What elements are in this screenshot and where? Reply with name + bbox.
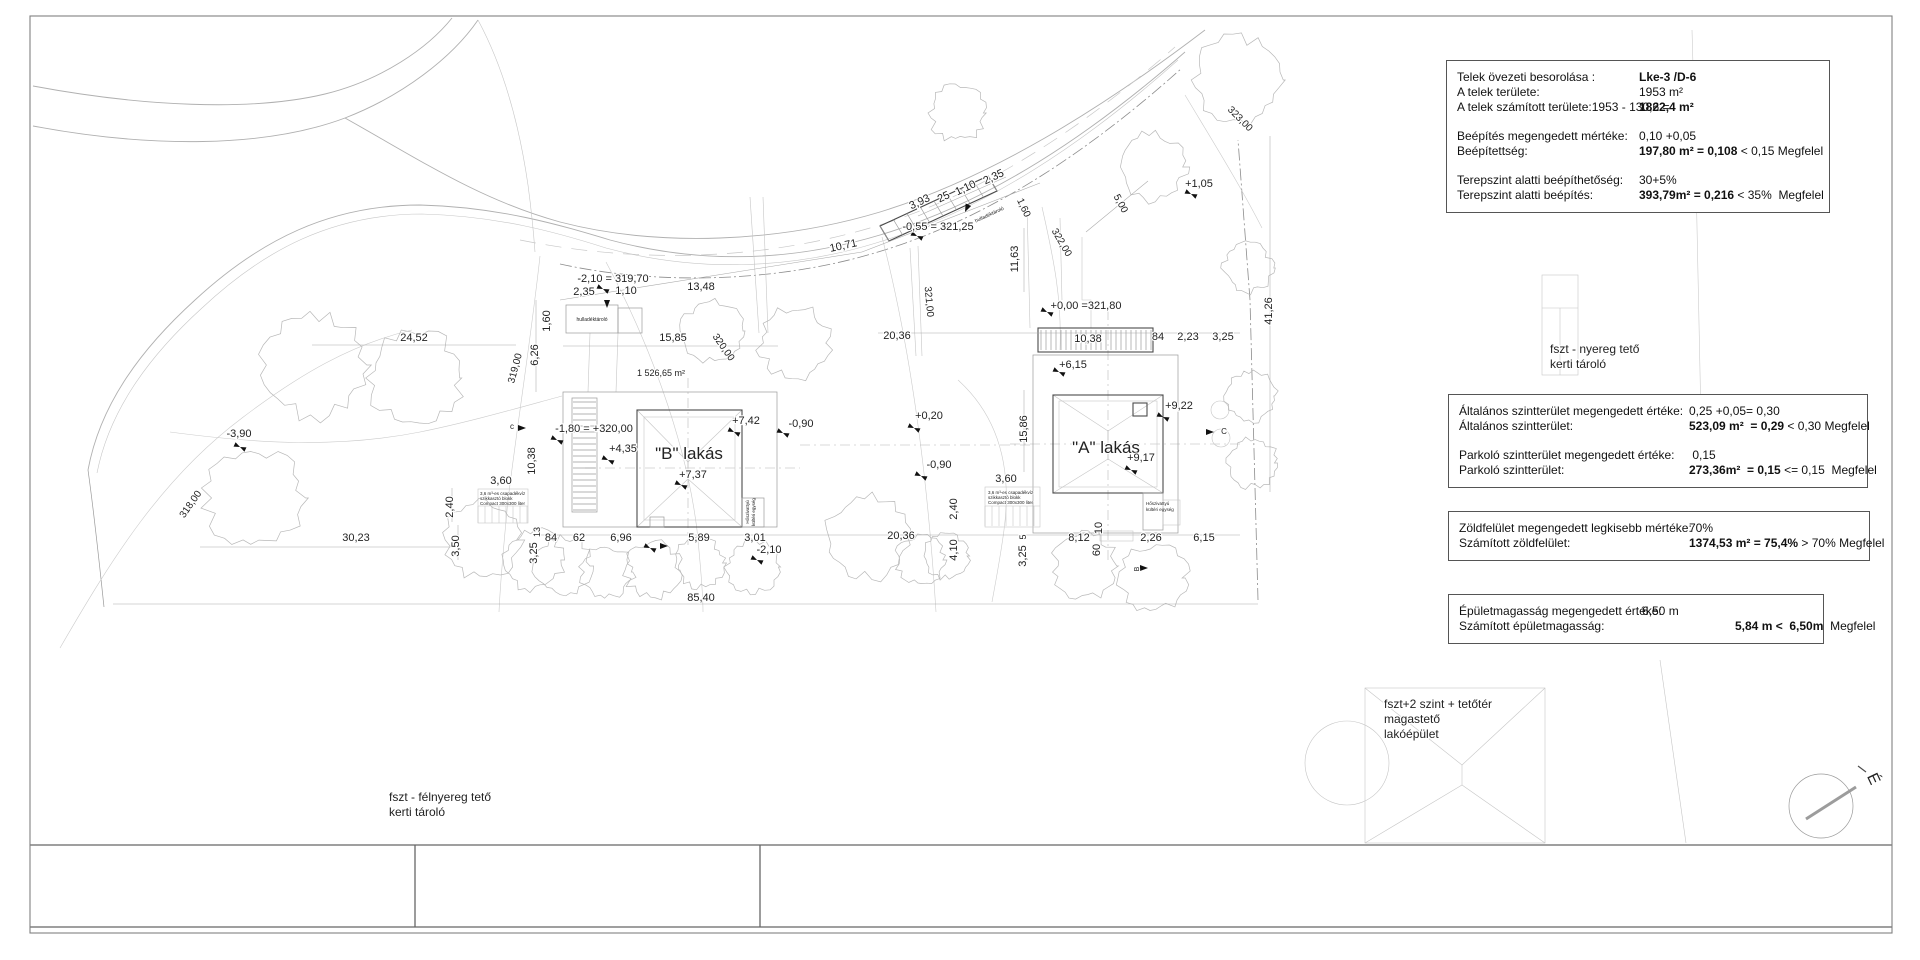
plan-label: -2,10 <box>756 544 781 556</box>
plan-label: +7,37 <box>679 469 707 481</box>
plan-label: Hőszivattyú <box>1146 501 1170 506</box>
row-label: Terepszint alatti beépítés: <box>1457 188 1639 203</box>
row-value: 5,84 m < 6,50m Megfelel <box>1735 619 1875 634</box>
plan-label: 25 <box>936 189 952 205</box>
plan-label: 13,48 <box>687 281 715 293</box>
panel-row: A telek számított területe:1953 - 130,6 … <box>1457 100 1819 115</box>
tree-symbol <box>680 298 745 363</box>
tree-symbol <box>1120 130 1189 204</box>
plan-label: hulladéktároló <box>974 206 1005 225</box>
plan-label: 1 526,65 m² <box>637 368 685 378</box>
row-label: Épületmagasság megengedett értéke: <box>1459 604 1642 619</box>
panel-row: Zöldfelület megengedett legkisebb mérték… <box>1459 521 1859 536</box>
plan-label: 15,86 <box>1018 415 1030 443</box>
plan-label: 84 <box>1152 331 1164 343</box>
plan-label: -2,10 = 319,70 <box>577 273 648 285</box>
plan-label: 8,12 <box>1068 532 1089 544</box>
plan-label: 41,26 <box>1263 297 1275 325</box>
plan-label: 3,25 <box>1017 545 1029 566</box>
row-label: Számított zöldfelület: <box>1459 536 1689 551</box>
spot-elevation-marker <box>644 543 657 552</box>
plan-label: 5 <box>1018 534 1028 539</box>
plan-label: hulladéktároló <box>576 317 607 323</box>
row-value: 0,25 +0,05= 0,30 <box>1689 404 1780 419</box>
plan-label: 321,00 <box>922 286 936 318</box>
direction-marker <box>1140 565 1148 571</box>
plan-label: 3,60 <box>490 475 511 487</box>
site-plan-sheet: -2,10 = 319,702,351,1013,4810,713,93251,… <box>0 0 1920 960</box>
plan-label: 30,23 <box>342 532 370 544</box>
row-value: 70% <box>1689 521 1713 536</box>
panel-row: Parkoló szintterület:273,36m² = 0,15 <= … <box>1459 463 1857 478</box>
direction-marker <box>660 543 668 549</box>
note-shed-right: fszt - nyereg tető <box>1550 342 1640 356</box>
plan-label: 24,52 <box>400 332 428 344</box>
spot-elevation-marker <box>602 455 615 464</box>
plan-label: 5,00 <box>1111 193 1130 216</box>
plan-label: 10 <box>1093 522 1105 534</box>
info-panel-zoning: Telek övezeti besorolása :Lke-3 /D-6 A t… <box>1446 60 1830 213</box>
plan-label: B <box>1134 566 1141 571</box>
plan-label: +4,35 <box>609 443 637 455</box>
plan-label: 13 <box>532 527 542 537</box>
row-value: 1953 m² <box>1639 85 1683 100</box>
plan-label: 3,25 <box>1212 331 1233 343</box>
plan-label: -0,55 = 321,25 <box>902 221 973 233</box>
row-value: 1822,4 m² <box>1639 100 1694 115</box>
plan-label: -3,90 <box>226 428 251 440</box>
plan-label: 11,63 <box>1009 246 1021 273</box>
plan-label: 62 <box>573 532 585 544</box>
note-main-building: fszt+2 szint + tetőtér <box>1384 697 1492 711</box>
plan-label: 2,35 <box>981 167 1005 187</box>
panel-row: Beépítettség:197,80 m² = 0,108 < 0,15 Me… <box>1457 144 1819 159</box>
info-panel-green: Zöldfelület megengedett legkisebb mérték… <box>1448 511 1870 561</box>
row-label: Beépítés megengedett mértéke: <box>1457 129 1639 144</box>
plan-label: 2,40 <box>948 498 960 519</box>
plan-label: 10,38 <box>1074 333 1102 345</box>
panel-row: Általános szintterület megengedett érték… <box>1459 404 1857 419</box>
plan-label: +9,22 <box>1165 400 1193 412</box>
plan-label: 20,36 <box>887 530 915 542</box>
row-value: 273,36m² = 0,15 <= 0,15 Megfelel <box>1689 463 1877 478</box>
plan-label: 1,60 <box>541 310 553 331</box>
plan-label: 2,23 <box>1177 331 1198 343</box>
plan-label: kültéri egység <box>1146 507 1174 512</box>
plan-label: 2,40 <box>444 496 456 517</box>
plan-label: Compact 300x300 liter <box>988 500 1034 505</box>
spot-elevation-marker <box>728 427 741 436</box>
row-value: 30+5% <box>1639 173 1677 188</box>
plan-label: 318,00 <box>178 489 205 521</box>
plan-label: 60 <box>1091 544 1103 556</box>
row-value: 523,09 m² = 0,29 < 0,30 Megfelel <box>1689 419 1870 434</box>
plan-label: +6,15 <box>1059 359 1087 371</box>
row-label: A telek területe: <box>1457 85 1639 100</box>
tree-symbol <box>928 84 987 141</box>
row-value: 6,50 m <box>1642 604 1679 619</box>
plan-label: 322,00 <box>1049 227 1074 259</box>
plan-label: 10,38 <box>526 447 538 475</box>
info-panel-height: Épületmagasság megengedett értéke:6,50 m… <box>1448 594 1824 644</box>
plan-label: 10,71 <box>829 237 858 254</box>
plan-label: -0,90 <box>788 418 813 430</box>
panel-row: Számított zöldfelület:1374,53 m² = 75,4%… <box>1459 536 1859 551</box>
spot-elevation-marker <box>597 284 610 293</box>
row-label: Számított épületmagasság: <box>1459 619 1642 634</box>
row-value: 0,10 +0,05 <box>1639 129 1696 144</box>
north-label: É <box>1863 770 1885 788</box>
plan-label: 323,00 <box>1225 105 1255 135</box>
tree-symbol <box>1221 241 1276 295</box>
plan-label: 1,60 <box>1014 197 1032 220</box>
plan-label: kültéri egység <box>751 498 756 526</box>
row-label: Terepszint alatti beépíthetőség: <box>1457 173 1639 188</box>
tree-symbol <box>1116 545 1190 611</box>
row-label: Beépítettség: <box>1457 144 1639 159</box>
panel-row: Terepszint alatti beépítés:393,79m² = 0,… <box>1457 188 1819 203</box>
row-label: Parkoló szintterület megengedett értéke: <box>1459 448 1689 463</box>
direction-marker <box>604 300 610 308</box>
panel-row: Telek övezeti besorolása :Lke-3 /D-6 <box>1457 70 1819 85</box>
plan-label: +0,20 <box>915 410 943 422</box>
plan-label: 4,10 <box>948 539 960 560</box>
row-label: Telek övezeti besorolása : <box>1457 70 1639 85</box>
row-label: Általános szintterület: <box>1459 419 1689 434</box>
tree-symbol <box>675 537 727 590</box>
plan-label: 85,40 <box>687 592 715 604</box>
plan-label: -1,80 = +320,00 <box>555 423 633 435</box>
plan-label: +9,17 <box>1127 452 1155 464</box>
plan-label: -0,90 <box>926 459 951 471</box>
panel-row: Terepszint alatti beépíthetőség:30+5% <box>1457 173 1819 188</box>
plan-label: C <box>1221 427 1227 436</box>
plan-label: +7,42 <box>732 415 760 427</box>
panel-row: Számított épületmagasság:5,84 m < 6,50m … <box>1459 619 1813 634</box>
plan-label: 3,50 <box>450 535 462 556</box>
plan-label: 2,26 <box>1140 532 1161 544</box>
plan-label: 3,60 <box>995 473 1016 485</box>
plan-label: 15,85 <box>659 332 687 344</box>
panel-row: A telek területe:1953 m² <box>1457 85 1819 100</box>
plan-label: 1,10 <box>615 285 636 297</box>
row-value: 1374,53 m² = 75,4% > 70% Megfelel <box>1689 536 1884 551</box>
row-value: 197,80 m² = 0,108 < 0,15 Megfelel <box>1639 144 1823 159</box>
row-label: Parkoló szintterület: <box>1459 463 1689 478</box>
panel-row: Általános szintterület:523,09 m² = 0,29 … <box>1459 419 1857 434</box>
tree-symbol <box>366 330 464 424</box>
plan-label: 3,01 <box>744 532 765 544</box>
note-shed-right: kerti tároló <box>1550 357 1606 371</box>
house-b-label: "B" lakás <box>655 444 723 463</box>
plan-label: +1,05 <box>1185 178 1213 190</box>
plan-label: Compact 300x300 liter <box>480 501 526 506</box>
tree-symbol <box>201 452 308 545</box>
plan-label: 3,93 <box>907 192 931 212</box>
plan-label: 2,35 <box>573 286 594 298</box>
plan-label: +0,00 =321,80 <box>1051 300 1122 312</box>
plan-label: 5,89 <box>688 532 709 544</box>
row-label: A telek számított területe:1953 - 130,6 … <box>1457 100 1639 115</box>
note-main-building: lakóépület <box>1384 727 1439 741</box>
plan-label: 20,36 <box>883 330 911 342</box>
plan-label: 6,96 <box>610 532 631 544</box>
note-main-building: magastető <box>1384 712 1440 726</box>
spot-elevation-marker <box>551 435 564 444</box>
spot-elevation-marker <box>1185 189 1198 198</box>
row-label: Általános szintterület megengedett érték… <box>1459 404 1689 419</box>
panel-row: Parkoló szintterület megengedett értéke:… <box>1459 448 1857 463</box>
row-value: 0,15 <box>1689 448 1716 463</box>
row-value: Lke-3 /D-6 <box>1639 70 1696 85</box>
plan-label: c <box>510 422 514 431</box>
trees <box>201 33 1285 611</box>
spot-elevation-marker <box>915 471 928 480</box>
info-panel-floor-area: Általános szintterület megengedett érték… <box>1448 394 1868 488</box>
note-shed-left: fszt - félnyereg tető <box>389 790 491 804</box>
plan-label: 1,10 <box>953 178 977 198</box>
plan-label: 3,25 <box>528 542 540 563</box>
panel-row: Épületmagasság megengedett értéke:6,50 m <box>1459 604 1813 619</box>
plan-label: Hőszivattyú <box>745 500 750 524</box>
plan-label: 84 <box>545 532 557 544</box>
row-value: 393,79m² = 0,216 < 35% Megfelel <box>1639 188 1824 203</box>
plan-label: 6,26 <box>529 344 541 365</box>
row-label: Zöldfelület megengedett legkisebb mérték… <box>1459 521 1689 536</box>
spot-elevation-marker <box>751 555 764 564</box>
tree-symbol <box>1226 437 1278 490</box>
spot-elevation-marker <box>234 442 247 451</box>
direction-marker <box>518 425 526 431</box>
tree-symbol <box>259 311 372 423</box>
note-shed-left: kerti tároló <box>389 805 445 819</box>
plan-label: 6,15 <box>1193 532 1214 544</box>
north-compass <box>1789 774 1856 838</box>
panel-row: Beépítés megengedett mértéke:0,10 +0,05 <box>1457 129 1819 144</box>
plan-label: 319,00 <box>506 352 525 385</box>
